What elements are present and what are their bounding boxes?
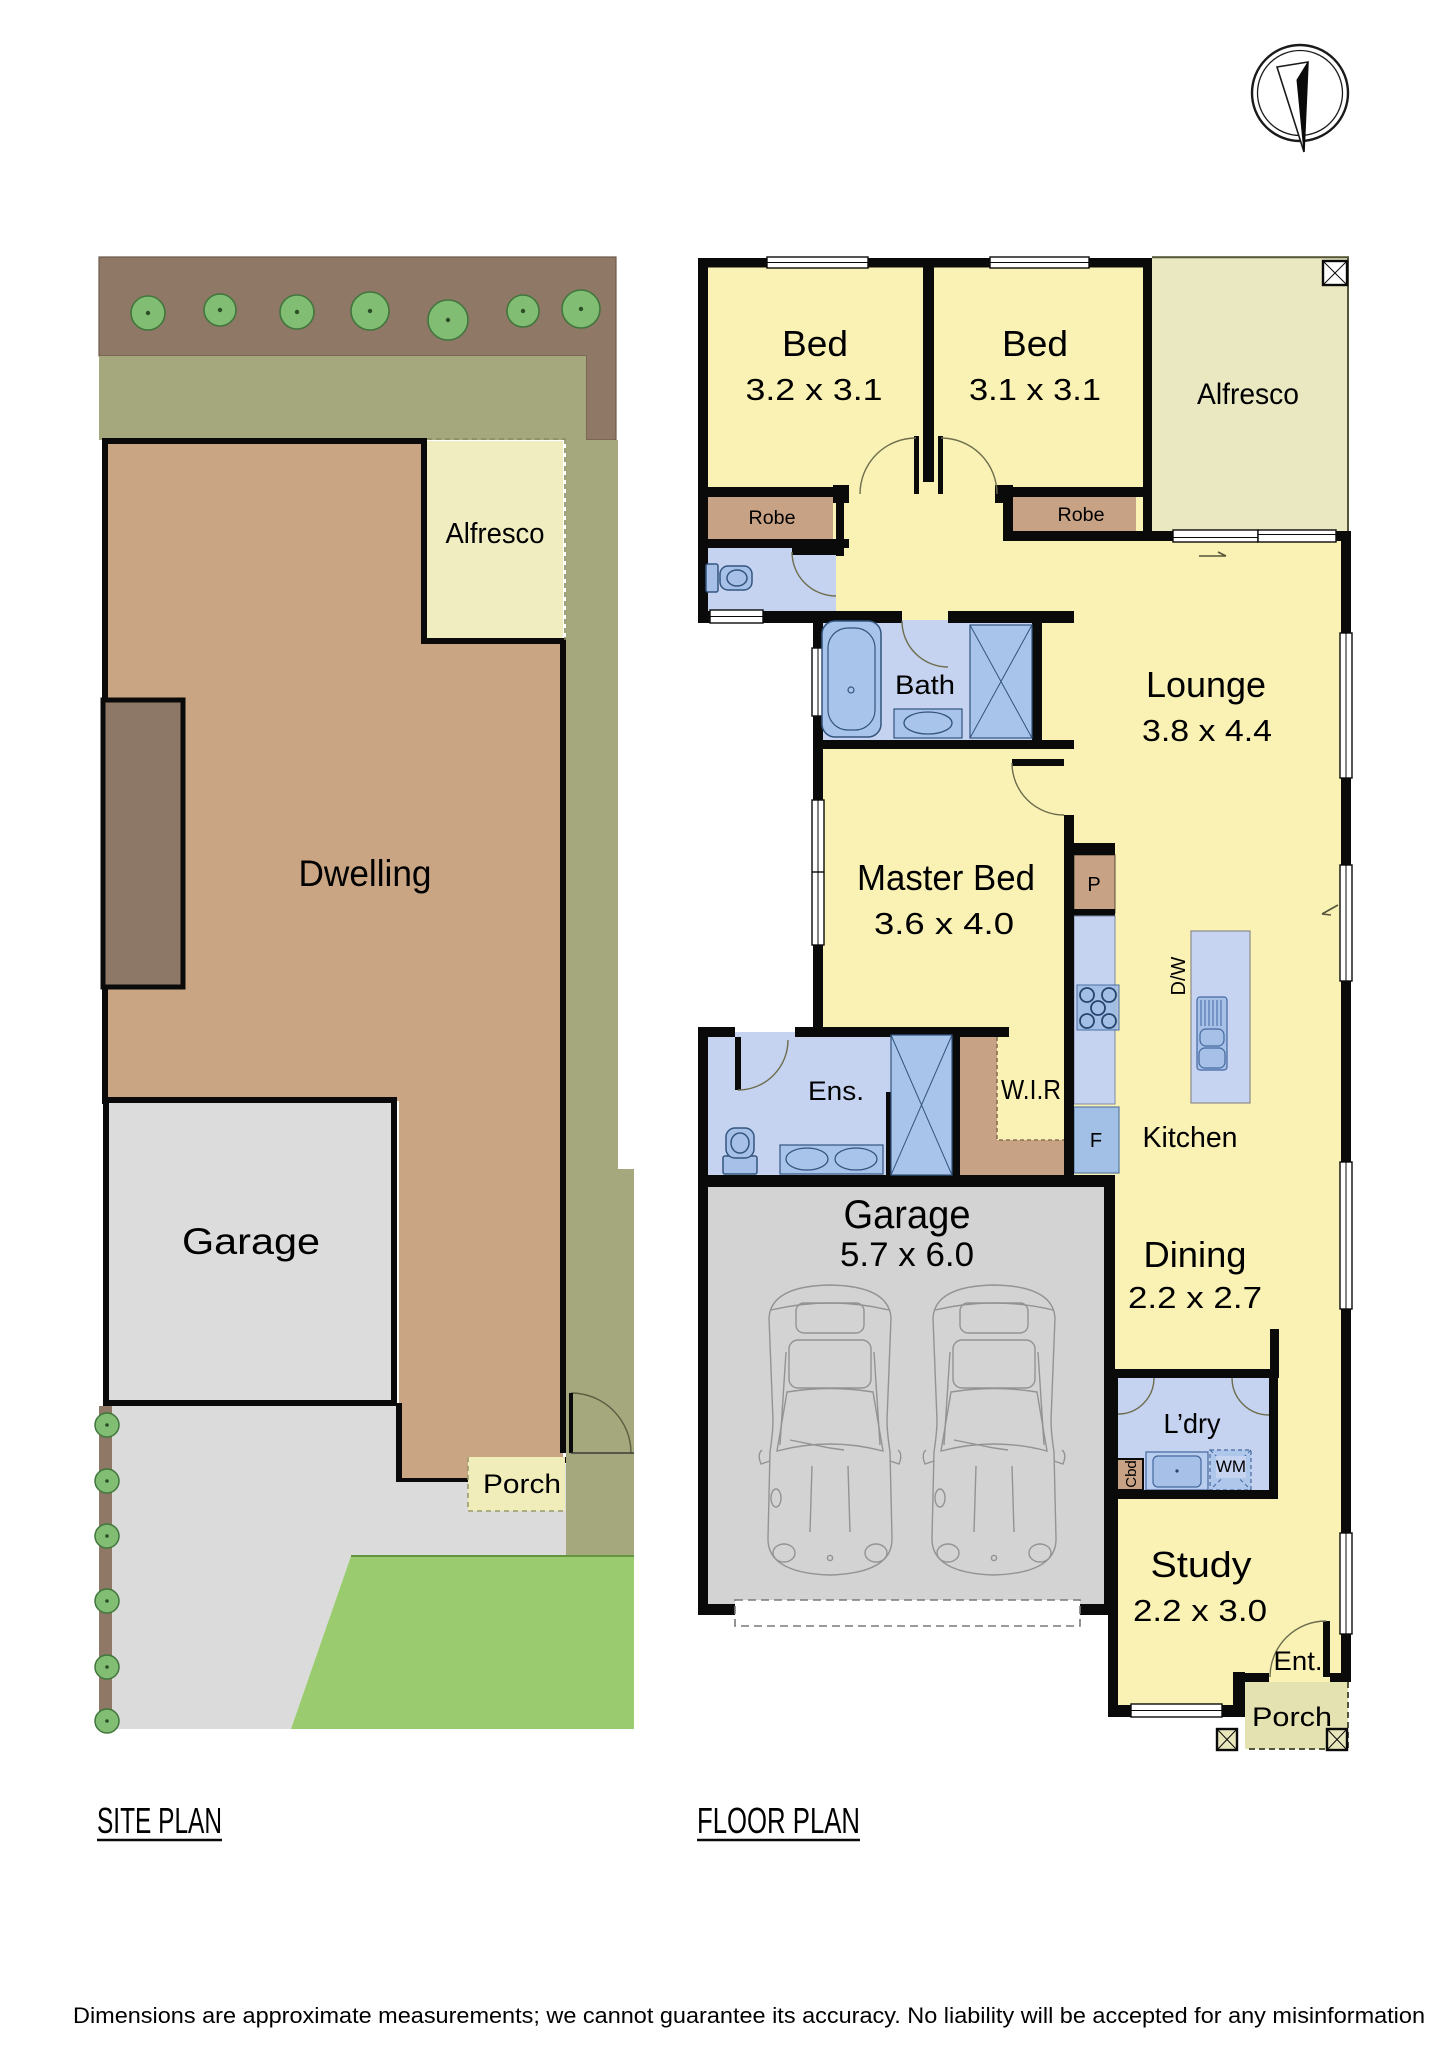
svg-text:3.1 x 3.1: 3.1 x 3.1 [969,372,1101,407]
svg-text:Cbd: Cbd [1123,1460,1140,1488]
svg-text:Bed: Bed [1002,323,1068,364]
svg-text:Garage: Garage [844,1193,971,1237]
svg-text:2.2 x 3.0: 2.2 x 3.0 [1133,1593,1267,1628]
svg-text:L’dry: L’dry [1164,1408,1221,1439]
svg-text:Dining: Dining [1144,1234,1247,1275]
svg-text:Master Bed: Master Bed [857,857,1035,898]
svg-text:3.8 x 4.4: 3.8 x 4.4 [1142,713,1272,748]
svg-text:Alfresco: Alfresco [446,518,545,550]
svg-text:Robe: Robe [749,508,796,529]
svg-text:Dimensions are approximate mea: Dimensions are approximate measurements;… [73,2003,1425,2028]
svg-text:SITE PLAN: SITE PLAN [97,1800,222,1841]
svg-text:Robe: Robe [1058,505,1105,526]
svg-text:Study: Study [1151,1544,1252,1585]
svg-text:Alfresco: Alfresco [1197,378,1299,411]
svg-text:Porch: Porch [1252,1702,1332,1732]
svg-text:D/W: D/W [1168,956,1190,995]
svg-text:Ent.: Ent. [1274,1646,1323,1676]
svg-text:FLOOR PLAN: FLOOR PLAN [697,1800,860,1841]
svg-text:Bed: Bed [782,323,848,364]
svg-text:Dwelling: Dwelling [299,853,432,894]
svg-text:2.2 x 2.7: 2.2 x 2.7 [1128,1280,1262,1315]
svg-text:P: P [1087,874,1100,896]
svg-text:F: F [1090,1130,1102,1152]
svg-text:3.6 x 4.0: 3.6 x 4.0 [874,906,1014,941]
svg-text:Porch: Porch [483,1469,561,1499]
svg-text:Kitchen: Kitchen [1143,1122,1238,1154]
svg-text:Lounge: Lounge [1146,664,1266,705]
svg-text:Ens.: Ens. [808,1076,864,1106]
svg-text:WM: WM [1216,1457,1246,1476]
svg-text:3.2 x 3.1: 3.2 x 3.1 [746,372,883,407]
svg-text:W.I.R: W.I.R [1001,1074,1061,1105]
svg-text:Garage: Garage [182,1221,320,1262]
svg-text:Bath: Bath [895,670,955,700]
svg-text:5.7 x 6.0: 5.7 x 6.0 [840,1236,974,1274]
